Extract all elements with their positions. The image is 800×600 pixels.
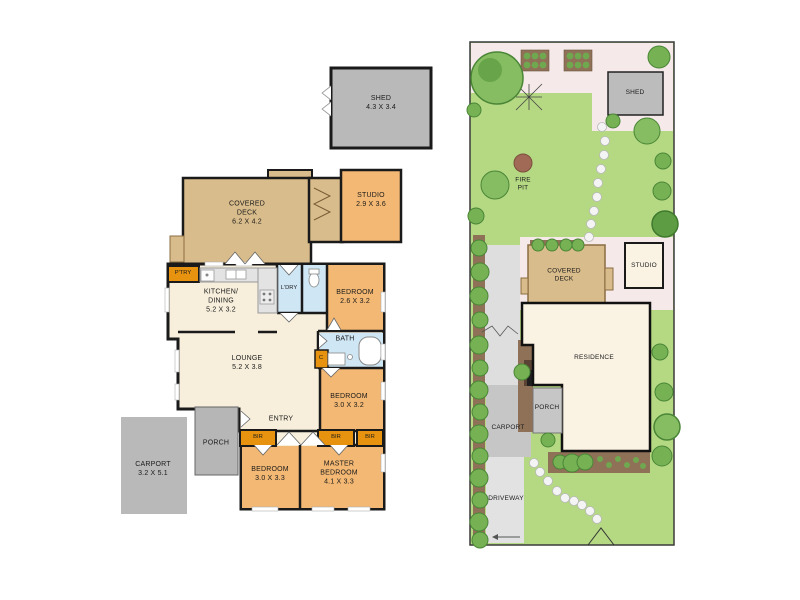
laundry-label: L'DRY (281, 285, 297, 293)
deck-step (170, 236, 184, 262)
site-carport-label: CARPORT (491, 424, 524, 432)
fire-pit-icon (514, 154, 532, 172)
stove-icon (260, 290, 274, 304)
porch-label: PORCH (203, 438, 229, 447)
floorplan-page: SHED 4.3 X 3.4 COVERED DECK 6.2 X 4.2 ST… (0, 0, 800, 600)
shed-label: SHED 4.3 X 3.4 (366, 94, 396, 112)
driveway-label: DRIVEWAY (488, 495, 524, 503)
basin-icon (348, 355, 353, 360)
cupboard-label: C (319, 355, 323, 363)
pantry-label: P'TRY (175, 270, 191, 278)
site-plan (467, 42, 680, 548)
covered-deck-label: COVERED DECK 6.2 X 4.2 (229, 199, 265, 226)
site-studio-label: STUDIO (631, 262, 657, 270)
toilet-icon (309, 273, 319, 287)
site-porch-label: PORCH (535, 404, 559, 412)
vanity-icon (328, 353, 345, 365)
lounge-label: LOUNGE 5.2 X 3.8 (232, 354, 263, 372)
carport-label: CARPORT 3.2 X 5.1 (135, 460, 171, 478)
site-covered-deck-label: COVERED DECK (547, 268, 581, 285)
master-bedroom-label: MASTER BEDROOM 4.1 X 3.3 (320, 459, 358, 486)
bedroom4-label: BEDROOM 3.0 X 3.3 (251, 465, 289, 483)
bedroom2-label: BEDROOM 2.6 X 3.2 (336, 288, 374, 306)
studio-label: STUDIO 2.9 X 3.6 (356, 191, 386, 209)
site-shed-label: SHED (626, 89, 645, 97)
bir1-label: BIR (253, 434, 263, 442)
entry-label: ENTRY (269, 414, 294, 423)
fire-pit-label: FIRE PIT (515, 177, 531, 194)
plans-drawing (0, 0, 800, 600)
bathtub-icon (359, 337, 381, 365)
kitchen-dining-label: KITCHEN/ DINING 5.2 X 3.2 (204, 287, 238, 314)
residence-label: RESIDENCE (574, 354, 614, 362)
bir3-label: BIR (365, 434, 375, 442)
bir2-label: BIR (331, 434, 341, 442)
bedroom3-label: BEDROOM 3.0 X 3.2 (330, 392, 368, 410)
bath-label: BATH (336, 334, 355, 343)
floor-plan (121, 68, 431, 514)
